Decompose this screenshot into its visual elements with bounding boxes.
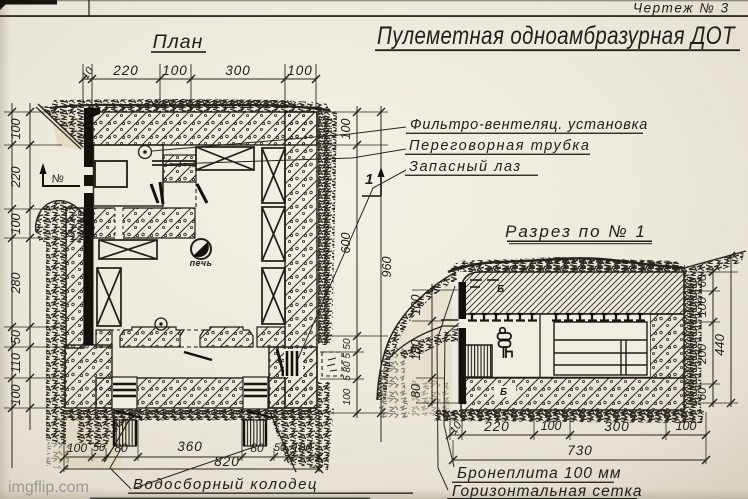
svg-text:Водосборный колодец: Водосборный колодец bbox=[133, 476, 318, 493]
svg-text:60: 60 bbox=[697, 387, 709, 400]
svg-text:110: 110 bbox=[9, 353, 23, 373]
svg-text:печь: печь bbox=[190, 258, 213, 268]
svg-text:Пулеметная одноамбразурная ДОТ: Пулеметная одноамбразурная ДОТ bbox=[377, 22, 736, 50]
svg-text:Запасный лаз: Запасный лаз bbox=[409, 159, 522, 175]
svg-text:Чертеж № 3: Чертеж № 3 bbox=[633, 1, 730, 16]
svg-text:50: 50 bbox=[93, 442, 106, 454]
svg-text:50: 50 bbox=[274, 442, 287, 454]
svg-text:960: 960 bbox=[380, 257, 394, 278]
svg-text:100: 100 bbox=[287, 63, 313, 78]
svg-text:730: 730 bbox=[567, 443, 593, 458]
svg-text:60: 60 bbox=[697, 274, 709, 287]
svg-text:100: 100 bbox=[9, 214, 23, 235]
svg-text:Б: Б bbox=[497, 284, 504, 295]
svg-text:План: План bbox=[153, 31, 204, 53]
svg-text:300: 300 bbox=[225, 63, 251, 78]
svg-text:80: 80 bbox=[409, 384, 423, 398]
svg-text:100: 100 bbox=[9, 119, 23, 140]
svg-text:100: 100 bbox=[342, 388, 353, 405]
svg-text:50: 50 bbox=[342, 338, 353, 350]
svg-text:100: 100 bbox=[695, 297, 709, 317]
svg-text:100: 100 bbox=[541, 419, 562, 433]
svg-text:180: 180 bbox=[409, 340, 423, 361]
svg-text:360: 360 bbox=[177, 439, 203, 454]
svg-text:Бронеплита 100 мм: Бронеплита 100 мм bbox=[457, 465, 621, 482]
svg-text:100: 100 bbox=[292, 441, 312, 455]
svg-text:Фильтро-вентеляц. установка: Фильтро-вентеляц. установка bbox=[410, 117, 648, 133]
svg-text:Горизонтальная сетка: Горизонтальная сетка bbox=[452, 483, 642, 499]
svg-text:Б: Б bbox=[500, 387, 507, 398]
svg-text:Разрез по № 1: Разрез по № 1 bbox=[505, 222, 647, 241]
svg-text:100: 100 bbox=[162, 63, 188, 78]
svg-text:5 80 5: 5 80 5 bbox=[342, 353, 353, 381]
svg-text:100: 100 bbox=[339, 119, 353, 140]
svg-text:200: 200 bbox=[695, 344, 709, 365]
svg-text:1: 1 bbox=[365, 171, 373, 188]
svg-text:100: 100 bbox=[9, 385, 23, 406]
svg-text:440: 440 bbox=[712, 333, 727, 355]
svg-text:imgflip.com: imgflip.com bbox=[8, 479, 89, 496]
svg-text:300: 300 bbox=[604, 419, 630, 434]
svg-text:100: 100 bbox=[409, 295, 423, 316]
svg-text:220: 220 bbox=[9, 167, 23, 189]
svg-text:100: 100 bbox=[676, 419, 697, 433]
svg-text:220: 220 bbox=[112, 63, 139, 78]
svg-text:Переговорная трубка: Переговорная трубка bbox=[409, 138, 590, 154]
svg-text:50: 50 bbox=[9, 330, 23, 344]
svg-text:№: № bbox=[51, 172, 66, 186]
svg-text:280: 280 bbox=[9, 273, 23, 295]
svg-text:220: 220 bbox=[483, 419, 510, 434]
svg-text:100: 100 bbox=[67, 441, 87, 455]
